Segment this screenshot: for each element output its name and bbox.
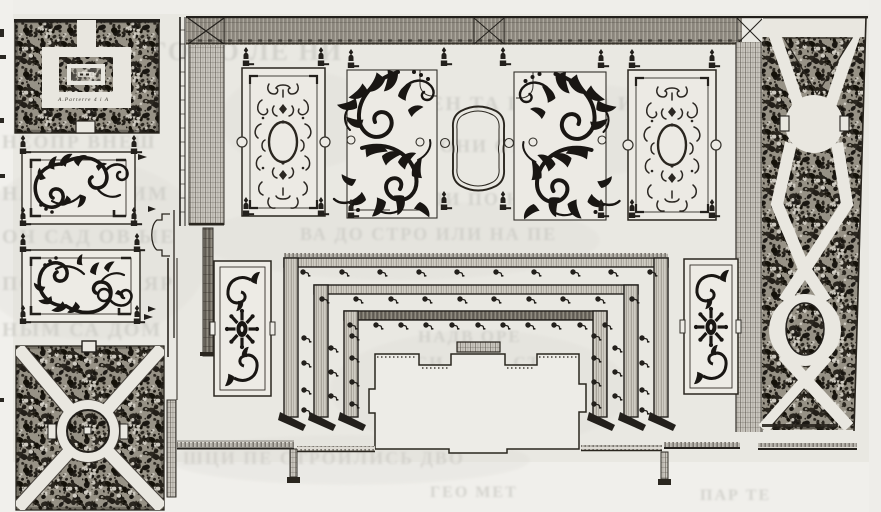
svg-text:ВА ДО СТРО ИЛИ НА ПЕ: ВА ДО СТРО ИЛИ НА ПЕ	[300, 224, 557, 244]
svg-text:A.Parterre 4 i A: A.Parterre 4 i A	[57, 96, 109, 103]
svg-text:ГЕО МЕТ: ГЕО МЕТ	[430, 484, 518, 501]
svg-text:ПАР ТЕ: ПАР ТЕ	[700, 487, 771, 504]
svg-text:ОН САД ОВ ЫЕ: ОН САД ОВ ЫЕ	[2, 226, 176, 248]
